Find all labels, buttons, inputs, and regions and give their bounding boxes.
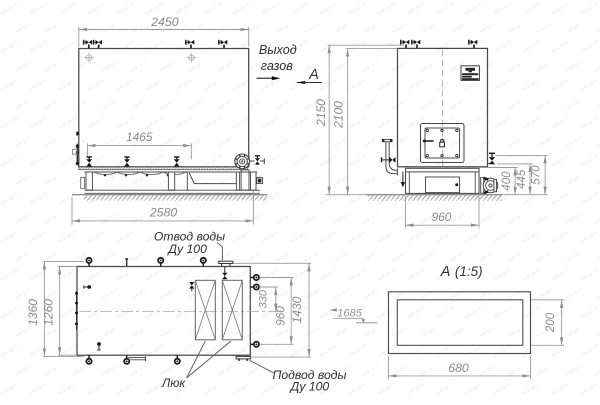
svg-text:Люк: Люк	[161, 376, 187, 390]
svg-text:Выход: Выход	[259, 43, 297, 57]
svg-text:330: 330	[257, 289, 269, 308]
svg-text:Ду 100: Ду 100	[289, 380, 330, 394]
svg-text:2580: 2580	[149, 206, 178, 220]
svg-text:2450: 2450	[150, 15, 179, 29]
svg-text:960: 960	[432, 210, 452, 224]
svg-text:200: 200	[545, 312, 557, 333]
svg-text:1360: 1360	[26, 299, 40, 326]
svg-text:400: 400	[501, 171, 513, 191]
svg-text:1685: 1685	[337, 307, 363, 319]
svg-text:1430: 1430	[290, 296, 304, 323]
svg-text:газов: газов	[261, 59, 294, 73]
svg-text:2150: 2150	[314, 99, 328, 127]
svg-text:1465: 1465	[126, 130, 153, 144]
svg-text:2100: 2100	[331, 101, 345, 129]
svg-text:1260: 1260	[42, 299, 56, 326]
svg-text:Ду 100: Ду 100	[166, 242, 207, 256]
svg-text:680: 680	[448, 361, 469, 375]
svg-text:445: 445	[516, 169, 528, 189]
svg-text:570: 570	[531, 165, 543, 185]
svg-text:(1:5): (1:5)	[455, 264, 483, 279]
svg-text:А: А	[440, 264, 451, 280]
svg-text:А: А	[308, 67, 319, 83]
svg-text:960: 960	[273, 306, 287, 326]
